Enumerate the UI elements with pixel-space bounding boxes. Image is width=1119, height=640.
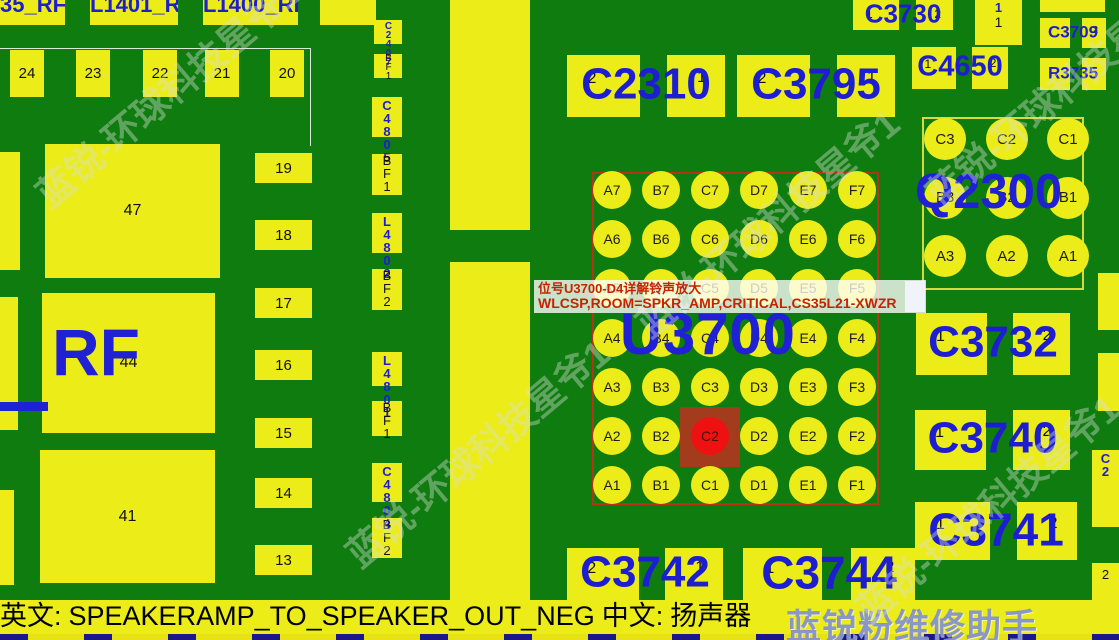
u3700-pin-E1[interactable]: E1 xyxy=(789,466,827,504)
component-C3709[interactable]: 2C3709 xyxy=(1040,18,1106,48)
tooltip-line1: 位号U3700-D4详解铃声放大 xyxy=(538,281,922,296)
component-ref-label: C2310 xyxy=(581,60,711,110)
side-pin-pad[interactable]: 15 xyxy=(255,418,312,448)
component-R3735[interactable]: R3735 xyxy=(1040,58,1106,90)
u3700-pin-E3[interactable]: E3 xyxy=(789,368,827,406)
component-C2310[interactable]: 21C2310 xyxy=(567,55,725,117)
side-pin-pad[interactable]: 19 xyxy=(255,153,312,183)
component-C3740[interactable]: 12C3740 xyxy=(915,410,1070,470)
component-ref-label: C3741 xyxy=(928,502,1064,556)
board-pad[interactable] xyxy=(450,0,530,230)
pad-pin-label-blue: 1 xyxy=(995,2,1002,14)
large-pad[interactable]: 41 xyxy=(40,450,215,583)
board-pad[interactable] xyxy=(1040,0,1105,12)
component-C3744[interactable]: 12C3744 xyxy=(743,548,915,600)
status-zh-label: 中文: xyxy=(602,601,664,631)
component-C4804[interactable]: C4804BF2 xyxy=(372,463,402,558)
pad-gap xyxy=(1098,330,1119,353)
u3700-pin-F4[interactable]: F4 xyxy=(838,319,876,357)
component-C3730[interactable]: 12C3730 xyxy=(853,0,953,30)
u3700-pin-C2[interactable]: C2 xyxy=(691,417,729,455)
component-ref-label: C4650 xyxy=(917,51,1002,84)
rf-label-underscore xyxy=(0,402,48,411)
component-L4801[interactable]: L4801BF1 xyxy=(372,352,402,436)
status-watermark: 蓝锐粉维修助手 xyxy=(786,599,1038,640)
side-pin-pad[interactable]: 14 xyxy=(255,478,312,508)
component-ref-label: C3709 xyxy=(1048,22,1098,42)
q2300-ref-label: Q2300 xyxy=(915,164,1062,220)
rf-net-label: RF xyxy=(52,314,140,390)
component-ref-label: C3744 xyxy=(761,545,897,599)
q2300-pin-C3[interactable]: C3 xyxy=(924,118,966,160)
side-pin-pad[interactable]: 17 xyxy=(255,288,312,318)
q2300-pin-C2[interactable]: C2 xyxy=(986,118,1028,160)
u3700-pin-F3[interactable]: F3 xyxy=(838,368,876,406)
q2300-pin-A1[interactable]: A1 xyxy=(1047,235,1089,277)
u3700-pin-C3[interactable]: C3 xyxy=(691,368,729,406)
status-zh-value: 扬声器 xyxy=(670,601,751,631)
u3700-pin-E6[interactable]: E6 xyxy=(789,220,827,258)
u3700-pin-F2[interactable]: F2 xyxy=(838,417,876,455)
component-ref-label: C3740 xyxy=(928,414,1058,464)
component-pin-name: BF1 xyxy=(383,53,393,80)
component-pin-fragment: 2 xyxy=(1099,567,1112,580)
component-C2407[interactable]: C2407BF1 xyxy=(374,20,402,78)
side-pin-pad[interactable]: 13 xyxy=(255,545,312,575)
top-net-label-text: L1400_RF xyxy=(203,0,298,18)
component-pin-name: BF2 xyxy=(381,517,394,556)
status-en-value: SPEAKERAMP_TO_SPEAKER_OUT_NEG xyxy=(69,601,595,631)
u3700-pin-D1[interactable]: D1 xyxy=(740,466,778,504)
u3700-pin-A3[interactable]: A3 xyxy=(593,368,631,406)
side-pin-pad[interactable]: 18 xyxy=(255,220,312,250)
status-en-label: 英文: xyxy=(0,601,62,631)
u3700-pin-D6[interactable]: D6 xyxy=(740,220,778,258)
u3700-pin-B2[interactable]: B2 xyxy=(642,417,680,455)
u3700-pin-F6[interactable]: F6 xyxy=(838,220,876,258)
u3700-pin-F1[interactable]: F1 xyxy=(838,466,876,504)
u3700-pin-E7[interactable]: E7 xyxy=(789,171,827,209)
connector-outline xyxy=(0,48,311,146)
pin-detail-tooltip: 位号U3700-D4详解铃声放大 WLCSP,ROOM=SPKR_AMP,CRI… xyxy=(534,280,926,313)
u3700-pin-B1[interactable]: B1 xyxy=(642,466,680,504)
pcb-boardview: U3700 Q2300 RF 1 1 C2 2 位号U3700-D4详解铃声放大… xyxy=(0,0,1119,640)
right-edge-component[interactable]: C2 2 xyxy=(1092,450,1119,600)
q2300-pin-A2[interactable]: A2 xyxy=(986,235,1028,277)
component-C3741[interactable]: 12C3741 xyxy=(915,502,1077,560)
component-pin-name: BF1 xyxy=(381,153,394,192)
right-edge-pad[interactable] xyxy=(1098,273,1119,411)
u3700-pin-E2[interactable]: E2 xyxy=(789,417,827,455)
u3700-pin-C1[interactable]: C1 xyxy=(691,466,729,504)
u3700-pin-D2[interactable]: D2 xyxy=(740,417,778,455)
q2300-pin-C1[interactable]: C1 xyxy=(1047,118,1089,160)
component-C3732[interactable]: 12C3732 xyxy=(916,313,1070,375)
board-pad[interactable] xyxy=(450,262,530,600)
u3700-pin-C7[interactable]: C7 xyxy=(691,171,729,209)
u3700-pin-D3[interactable]: D3 xyxy=(740,368,778,406)
u3700-pin-C6[interactable]: C6 xyxy=(691,220,729,258)
u3700-pin-B3[interactable]: B3 xyxy=(642,368,680,406)
q2300-pin-A3[interactable]: A3 xyxy=(924,235,966,277)
component-ref-label: C3730 xyxy=(865,0,942,30)
component-C3795[interactable]: 21C3795 xyxy=(737,55,895,117)
component-ref-label: C3732 xyxy=(928,318,1058,368)
u3700-pin-A6[interactable]: A6 xyxy=(593,220,631,258)
board-pad[interactable] xyxy=(0,152,20,270)
pad-pin-label-black: 1 xyxy=(995,14,1003,30)
tooltip-line2: WLCSP,ROOM=SPKR_AMP,CRITICAL,CS35L21-XWZ… xyxy=(538,296,922,311)
top-net-label-text: 35_RF xyxy=(0,0,65,18)
component-ref-label: C3742 xyxy=(580,548,710,598)
small-component-pad[interactable]: 1 1 xyxy=(975,0,1022,45)
top-net-label: L1401_RF xyxy=(90,0,178,25)
component-ref-label: C3795 xyxy=(751,60,881,110)
component-C4650[interactable]: 12C4650 xyxy=(912,47,1008,89)
pad-gap xyxy=(1092,527,1119,563)
u3700-pin-B7[interactable]: B7 xyxy=(642,171,680,209)
board-pad[interactable] xyxy=(320,0,376,25)
component-C3742[interactable]: 21C3742 xyxy=(567,548,723,600)
u3700-pin-A7[interactable]: A7 xyxy=(593,171,631,209)
u3700-pin-F7[interactable]: F7 xyxy=(838,171,876,209)
board-pad[interactable] xyxy=(0,490,14,585)
u3700-pin-A1[interactable]: A1 xyxy=(593,466,631,504)
component-pin-name: BF2 xyxy=(381,268,394,307)
u3700-pin-D7[interactable]: D7 xyxy=(740,171,778,209)
component-L4802[interactable]: L4802BF2 xyxy=(372,213,402,310)
component-pin-name: BF1 xyxy=(381,400,394,439)
component-C4805[interactable]: C4805BF1 xyxy=(372,97,402,195)
large-pad[interactable]: 47 xyxy=(45,144,220,278)
top-net-label-text: L1401_RF xyxy=(90,0,178,18)
component-ref-label: R3735 xyxy=(1048,63,1098,83)
top-net-label: L1400_RF xyxy=(203,0,298,25)
u3700-pin-B6[interactable]: B6 xyxy=(642,220,680,258)
side-pin-pad[interactable]: 16 xyxy=(255,350,312,380)
component-ref-fragment: C2 xyxy=(1099,451,1112,477)
top-net-label: 35_RF xyxy=(0,0,65,25)
u3700-pin-A2[interactable]: A2 xyxy=(593,417,631,455)
